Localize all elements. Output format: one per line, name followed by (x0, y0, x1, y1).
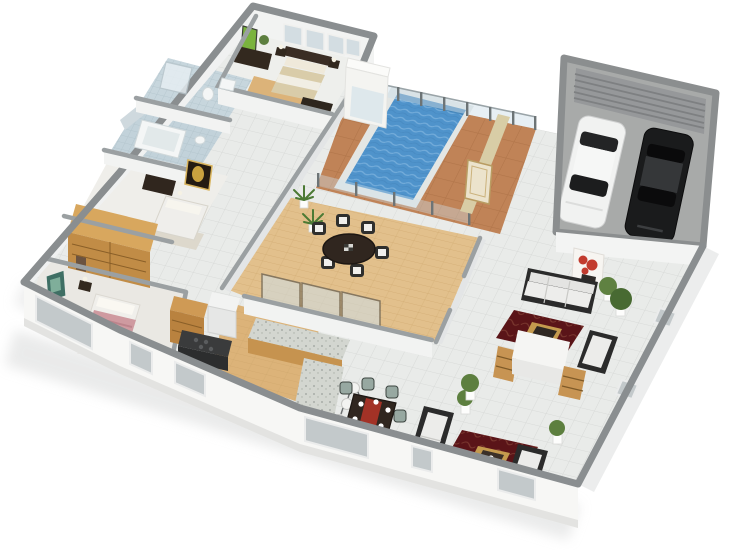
palm-pot-1 (300, 200, 308, 208)
garage (556, 58, 716, 266)
bedroom2-art-gold (192, 166, 204, 182)
front-window-5 (412, 446, 432, 472)
nook-plant-foliage (461, 374, 479, 392)
toilet (203, 88, 214, 101)
bedroom2-lamp (178, 191, 182, 195)
master-window-1 (284, 24, 302, 46)
master-window-3 (328, 34, 344, 55)
bedroom3-lamp (83, 277, 88, 282)
bath1-sink (219, 78, 236, 91)
floor-plan-render (0, 0, 730, 550)
plant-foliage-b (610, 288, 632, 310)
shower-glass (160, 62, 192, 94)
master-lamp-left (279, 45, 283, 49)
bath2-sink (195, 136, 205, 144)
plant-foliage-2 (549, 420, 565, 436)
master-window-4 (346, 38, 360, 57)
floor-plan-canvas (0, 0, 730, 550)
master-lamp-right (332, 58, 336, 62)
master-plant (259, 35, 269, 45)
pool-shower-box (344, 58, 390, 128)
entry-door (465, 160, 492, 204)
master-window-2 (306, 29, 324, 51)
fridge-front (208, 306, 236, 338)
